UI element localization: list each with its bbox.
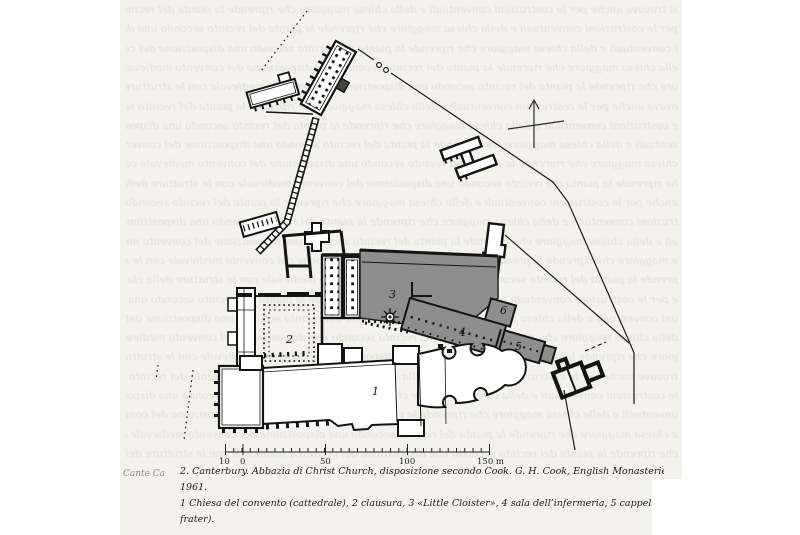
north-arrow-icon [508, 100, 564, 148]
caption-line-1: 2. Canterbury. Abbazia di Christ Church,… [180, 466, 664, 477]
label-infirmary-hall: 4 [458, 326, 466, 339]
faint-margin-note: Cante Ca [123, 469, 183, 479]
caption-line-3: 1 Chiesa del convento (cattedrale), 2 cl… [180, 498, 652, 509]
southeast-chapel-building [550, 348, 605, 397]
scale-bar: 10 0 50 100 150 m [219, 444, 504, 467]
dormitory-halls [322, 255, 360, 318]
green-court-long-hall [298, 39, 364, 119]
caption-line-2: 1961. [180, 482, 380, 493]
label-misericord: 6 [500, 304, 507, 317]
caption-line-4: frater). [180, 514, 380, 525]
northwest-hall [244, 71, 299, 110]
label-church: 1 [372, 385, 379, 398]
label-little-cloister: 3 [389, 288, 396, 301]
label-cloister: 2 [285, 333, 293, 346]
label-infirmary-chapel: 5 [515, 340, 522, 353]
scanned-book-page: si trovava anche per le costruzioni conv… [0, 0, 800, 535]
refectory-north-wall [237, 294, 322, 295]
monastery-plan-figure: 2 3 4 5 6 1 10 0 50 100 150 m [0, 0, 800, 535]
